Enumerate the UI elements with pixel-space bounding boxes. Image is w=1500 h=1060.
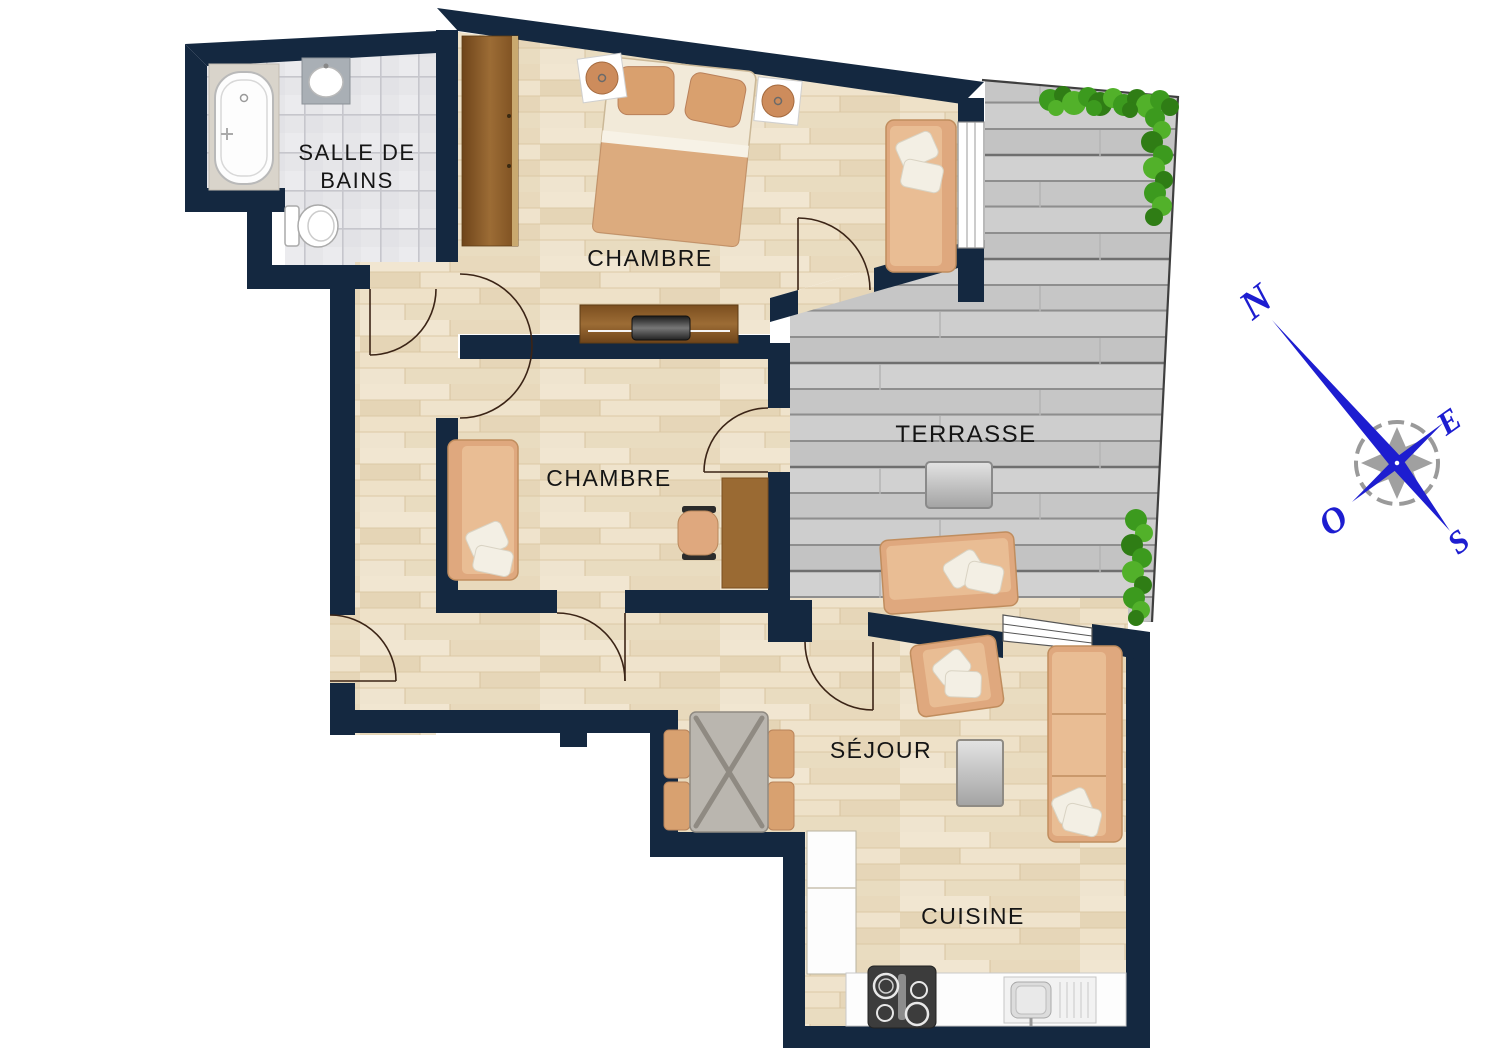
floor-plan-page: SALLE DE BAINS CHAMBRE CHAMBRE TERRASSE … [0, 0, 1500, 1060]
stove [868, 966, 936, 1028]
nightstand-left [577, 53, 627, 103]
wall-kitchen-left [783, 857, 805, 1048]
fridge-column [807, 831, 856, 974]
dining-chair [664, 782, 690, 830]
dining-set [664, 712, 794, 832]
label-salle-de-bains-line1: SALLE DE [298, 140, 415, 165]
sink-basin [309, 67, 343, 97]
office-chair [678, 506, 718, 560]
wall-bedroom2-bottom-left [436, 590, 557, 613]
bedroom1-sofa [886, 120, 956, 272]
nightstand-right [754, 77, 802, 125]
desk [722, 478, 768, 588]
wall-step-column [247, 212, 272, 289]
coffee-table [957, 740, 1003, 806]
wall-bedroom2-bottom-right [625, 590, 790, 613]
bedroom2-bottom-door-floor [557, 590, 625, 613]
wall-right [1126, 650, 1150, 1048]
floor-plan-svg: SALLE DE BAINS CHAMBRE CHAMBRE TERRASSE … [0, 0, 1500, 1060]
wall-bedroom2-right-upper [768, 343, 790, 408]
sink-tap [324, 64, 329, 69]
bedroom2-sofa [448, 440, 518, 580]
wall-bedroom2-right-lower [768, 472, 790, 600]
tv-screen [632, 316, 690, 340]
wardrobe [462, 36, 518, 246]
wall-living-bottomleft [650, 832, 805, 857]
terrace-table [926, 462, 992, 508]
wardrobe-handle [507, 164, 511, 168]
dining-chair [664, 730, 690, 778]
toilet-tank [285, 206, 299, 246]
compass-center [1394, 460, 1400, 466]
sink-basin-inner [1016, 986, 1046, 1014]
wardrobe-door-strip [512, 36, 518, 246]
wall-corridor-left-upper [330, 287, 355, 615]
label-cuisine: CUISINE [921, 903, 1025, 929]
wall-bathroom-bottom [272, 265, 370, 289]
chair-seat [678, 511, 718, 555]
living-sofa [1048, 646, 1122, 842]
bed-pillow [683, 71, 747, 129]
tv-cabinet [580, 305, 738, 343]
label-sejour: SÉJOUR [830, 737, 932, 763]
wall-stub [560, 733, 587, 747]
wardrobe-handle [507, 114, 511, 118]
dining-chair [768, 782, 794, 830]
terrace-sofa [880, 531, 1019, 614]
label-terrasse: TERRASSE [895, 421, 1036, 448]
label-chambre-2: CHAMBRE [546, 465, 672, 491]
armchair [909, 634, 1004, 717]
entry-door-floor [330, 613, 355, 685]
bedroom1-window [958, 122, 984, 248]
wall-bedroom1-left [436, 30, 458, 262]
label-salle-de-bains-line2: BAINS [320, 168, 394, 193]
wall-bathroom-left [185, 44, 207, 190]
wall-corridor-bottom [330, 710, 650, 733]
bedroom2-terrace-door-floor [768, 408, 790, 472]
kitchen-sink [1004, 977, 1096, 1026]
corridor-opening-floor [436, 262, 458, 418]
dining-chair [768, 730, 794, 778]
wall-bathroom-bottomleft [185, 188, 285, 212]
wall-window-head [958, 98, 984, 122]
wall-window-sill [958, 248, 984, 302]
wall-bottom [783, 1026, 1150, 1048]
armchair-cushion [945, 671, 982, 698]
label-chambre-1: CHAMBRE [587, 245, 713, 271]
